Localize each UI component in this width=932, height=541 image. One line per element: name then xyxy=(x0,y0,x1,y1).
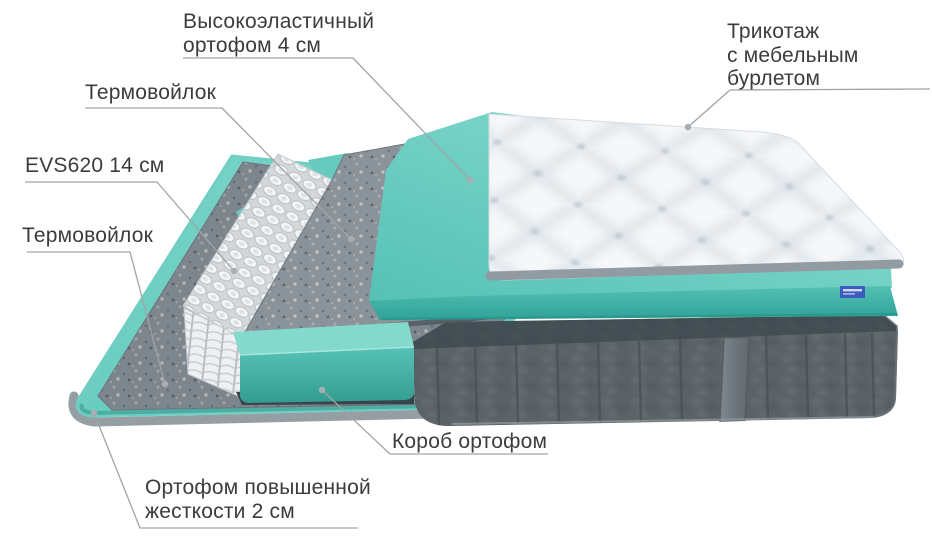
label-springs: EVS620 14 см xyxy=(25,154,164,178)
dot-felt-top xyxy=(348,236,354,242)
dot-top-foam xyxy=(467,177,473,183)
label-top-foam: Высокоэластичный ортофом 4 см xyxy=(183,10,374,57)
leader-cover xyxy=(688,89,930,127)
dot-felt-bottom xyxy=(162,381,168,387)
mattress-layers-diagram: Высокоэластичный ортофом 4 см Трикотаж с… xyxy=(0,0,932,541)
label-cover: Трикотаж с мебельным бурлетом xyxy=(727,20,859,91)
dot-springs xyxy=(231,268,237,274)
dot-cover xyxy=(685,124,691,130)
label-base-foam: Ортофом повышенной жесткости 2 см xyxy=(145,476,371,523)
label-felt-bottom: Термовойлок xyxy=(22,224,153,248)
base-handle xyxy=(720,338,749,422)
label-box-foam: Короб ортофом xyxy=(392,430,547,454)
label-felt-top: Термовойлок xyxy=(85,81,216,105)
cover-quilted-top xyxy=(489,114,904,280)
cover-layer xyxy=(489,114,904,280)
base-box xyxy=(408,315,898,426)
dot-box-foam xyxy=(319,387,325,393)
brand-tag xyxy=(840,286,865,298)
dot-base-foam xyxy=(91,410,97,416)
